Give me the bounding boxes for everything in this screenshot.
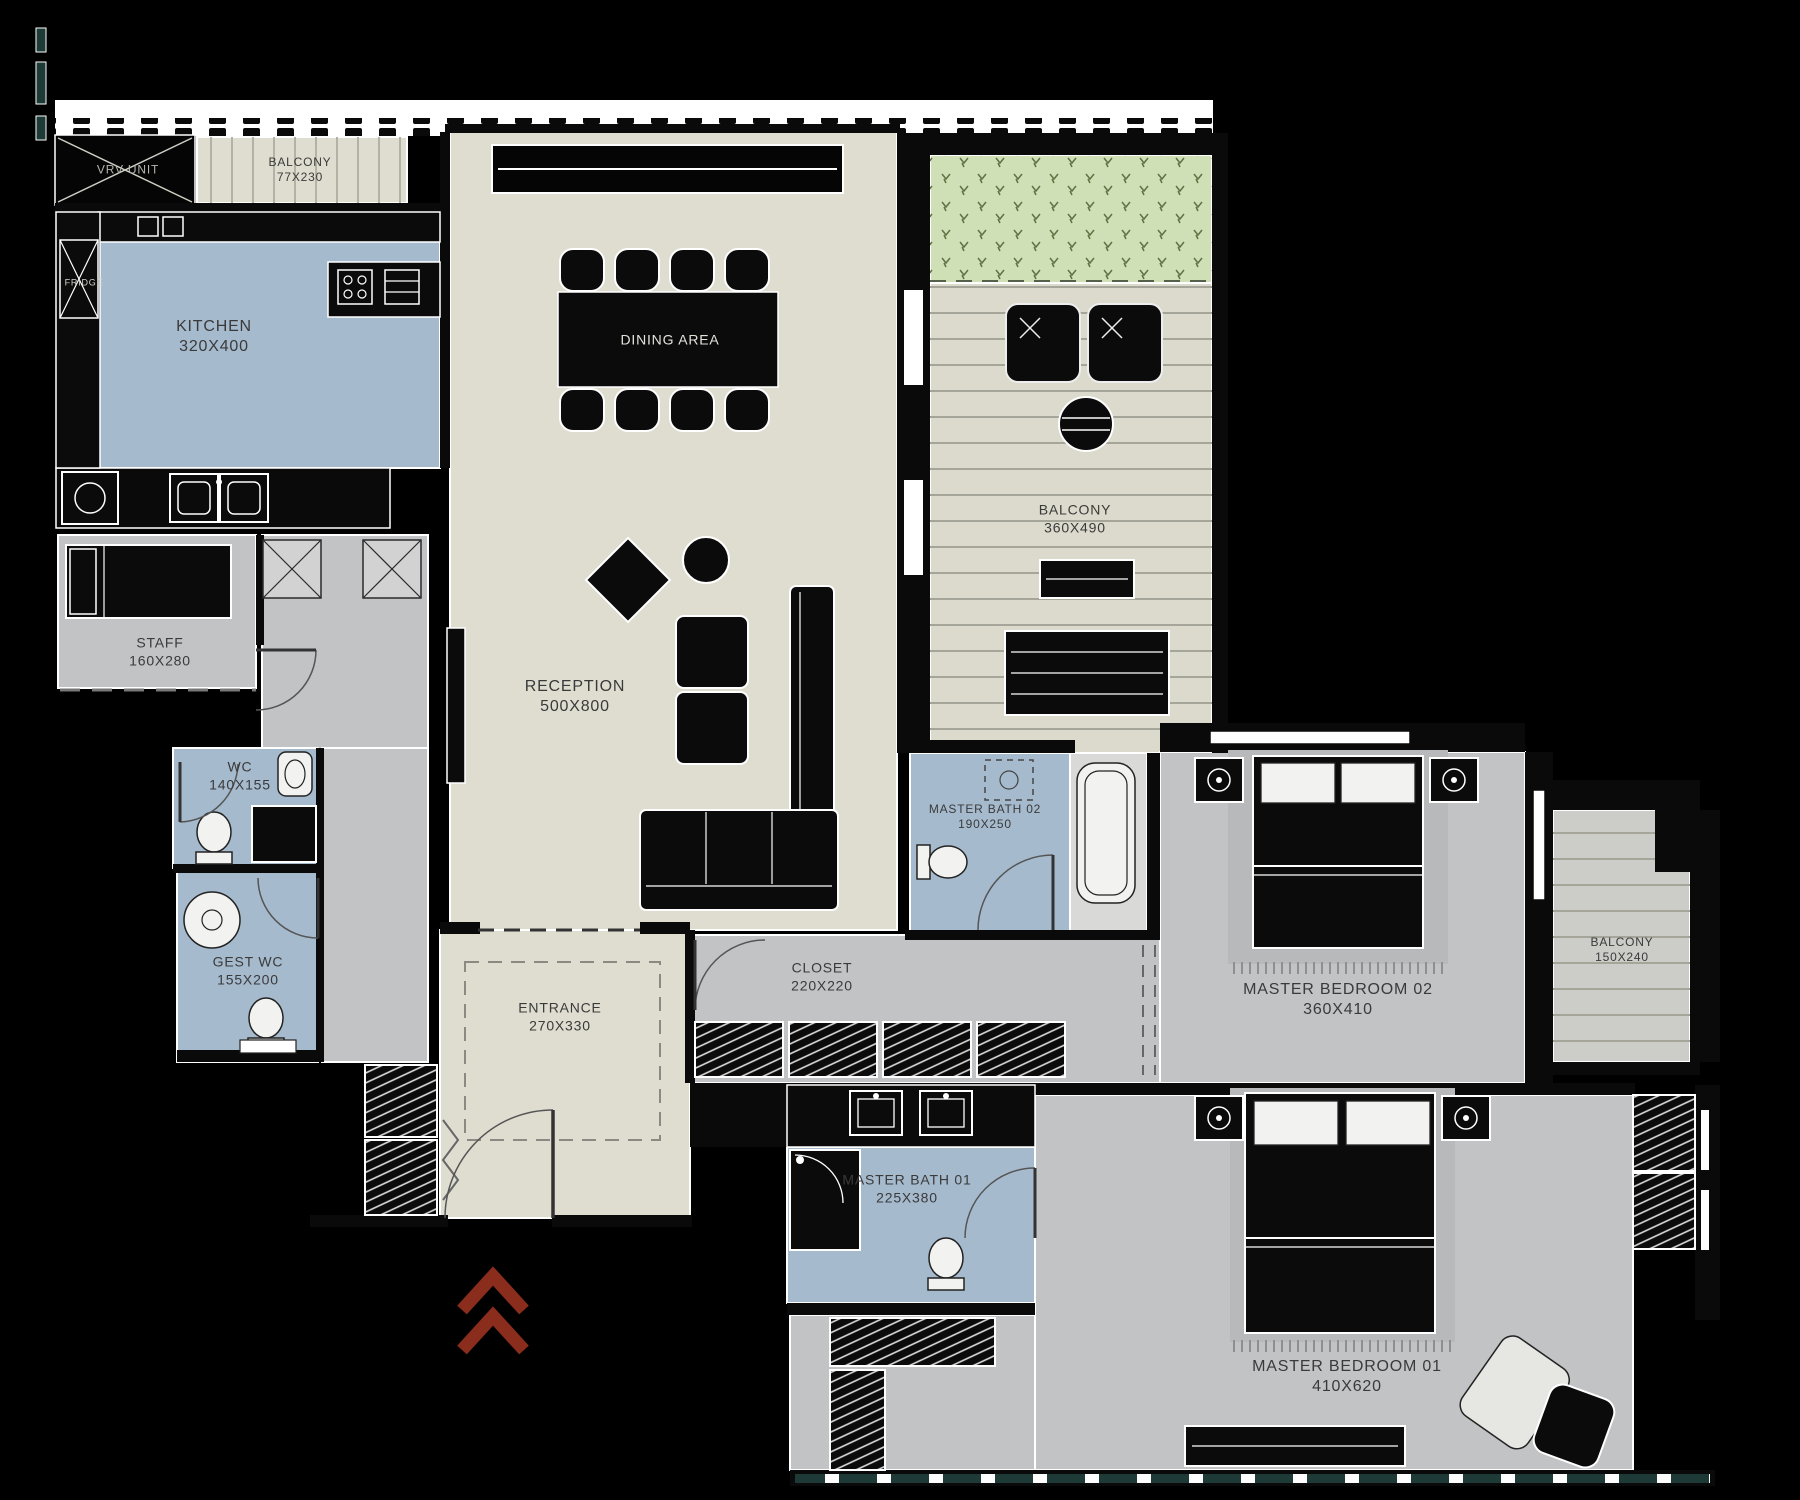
dining-chair	[670, 249, 714, 291]
floorplan-canvas: VRV UNIT BALCONY77X230 KITCHEN320X400 FR…	[0, 0, 1800, 1500]
room-label-balcony-right: BALCONY150X240	[1591, 935, 1654, 965]
master-bath-02-floor	[910, 753, 1070, 935]
armchair-icon	[676, 616, 748, 688]
double-bed-icon	[1253, 756, 1423, 948]
corridor-floor-lower	[322, 748, 428, 1062]
single-bed-icon	[66, 545, 231, 618]
nightstand-icon	[1430, 758, 1478, 802]
cooktop-icon	[338, 270, 372, 304]
room-label-closet: CLOSET220X220	[791, 960, 853, 995]
washer-icon	[62, 472, 118, 524]
dining-chair	[560, 249, 604, 291]
shower-icon	[252, 806, 316, 862]
dining-chair	[615, 389, 659, 431]
room-label-master-bedroom-01: MASTER BEDROOM 01410X620	[1252, 1357, 1442, 1397]
side-table-icon	[683, 537, 729, 583]
room-label-kitchen: KITCHEN320X400	[176, 317, 252, 357]
wardrobe-icon	[1633, 1173, 1695, 1249]
sink-icon	[850, 1091, 902, 1135]
dining-chair	[670, 389, 714, 431]
wardrobe-icon	[883, 1022, 971, 1077]
room-label-fridge: FRIDGE	[65, 277, 104, 288]
room-label-entrance: ENTRANCE270X330	[518, 1000, 601, 1035]
dining-chair	[615, 249, 659, 291]
dining-chair	[725, 389, 769, 431]
wardrobe-icon	[695, 1022, 783, 1077]
dish-rack-icon	[163, 217, 183, 236]
outdoor-chair-icon	[1006, 304, 1080, 382]
wardrobe-icon	[1633, 1095, 1695, 1171]
double-bed-icon	[1245, 1093, 1435, 1333]
shoe-cabinet-icon	[365, 1065, 437, 1215]
room-label-reception: RECEPTION500X800	[525, 677, 626, 717]
nightstand-icon	[1442, 1096, 1490, 1140]
wardrobe-icon	[789, 1022, 877, 1077]
toilet-icon	[196, 812, 232, 864]
oven-icon	[385, 270, 419, 304]
room-label-master-bedroom-02: MASTER BEDROOM 02360X410	[1243, 980, 1433, 1020]
room-label-master-bath-02: MASTER BATH 02190X250	[929, 802, 1041, 832]
wardrobe-icon	[977, 1022, 1065, 1077]
exterior-wall-fragments	[36, 28, 46, 140]
tv-unit-icon	[447, 628, 465, 783]
wardrobe-icon	[830, 1370, 885, 1470]
master-bedroom-02-furniture	[1195, 750, 1478, 974]
room-label-balcony-top: BALCONY77X230	[269, 155, 332, 185]
shelf-icon	[240, 1040, 296, 1053]
room-label-staff: STAFF160X280	[129, 635, 191, 670]
room-label-master-bath-01: MASTER BATH 01225X380	[842, 1172, 971, 1207]
sink-icon	[920, 1091, 972, 1135]
floorplan-drawing	[0, 0, 1800, 1500]
corner-sink-icon	[184, 892, 240, 948]
entrance-direction-chevrons	[462, 1276, 524, 1350]
toilet-icon	[917, 845, 967, 879]
sink-icon	[278, 752, 312, 796]
room-label-dining-area: DINING AREA	[620, 331, 719, 349]
toilet-icon	[928, 1238, 964, 1290]
nightstand-icon	[1195, 1096, 1243, 1140]
wardrobe-icon	[830, 1318, 995, 1366]
dining-chair	[725, 249, 769, 291]
dish-rack-icon	[138, 217, 158, 236]
room-label-wc: WC140X155	[209, 759, 271, 794]
outdoor-chair-icon	[1088, 304, 1162, 382]
room-label-vrv-unit: VRV UNIT	[97, 163, 159, 178]
sofa-horizontal	[640, 810, 838, 910]
kitchen-floor	[98, 212, 440, 468]
dining-chair	[560, 389, 604, 431]
room-label-gest-wc: GEST WC155X200	[213, 954, 284, 989]
outdoor-table-icon	[1059, 397, 1113, 451]
double-sink-icon	[170, 474, 268, 522]
entrance-floor	[440, 930, 690, 1218]
room-label-balcony-main: BALCONY360X490	[1039, 502, 1112, 537]
bathtub-icon	[1077, 763, 1135, 903]
armchair-icon	[676, 692, 748, 764]
nightstand-icon	[1195, 758, 1243, 802]
